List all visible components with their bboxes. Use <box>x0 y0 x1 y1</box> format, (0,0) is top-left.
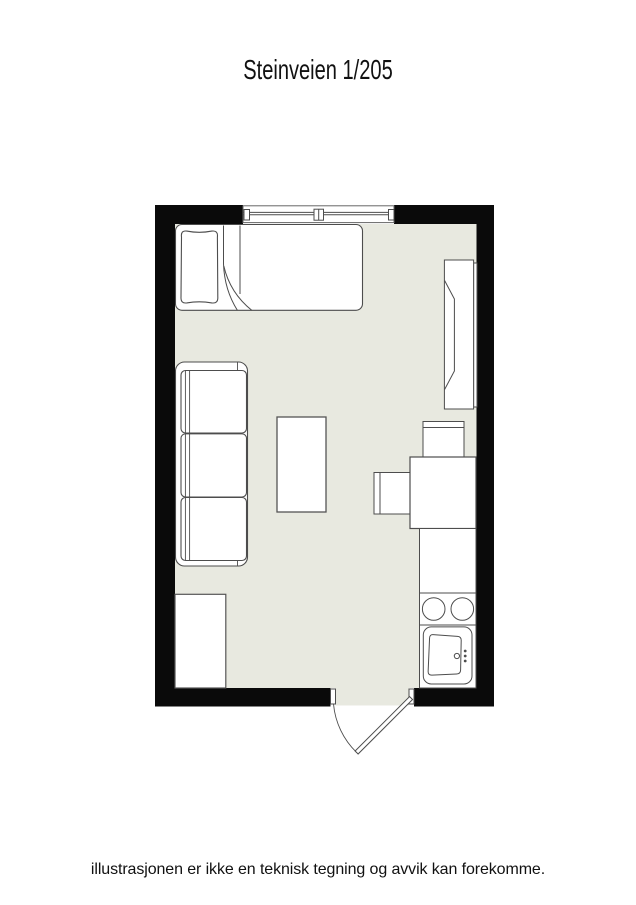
svg-text:Steinveien 1/205: Steinveien 1/205 <box>243 55 392 86</box>
svg-text:illustrasjonen er ikke en tekn: illustrasjonen er ikke en teknisk tegnin… <box>91 861 545 878</box>
